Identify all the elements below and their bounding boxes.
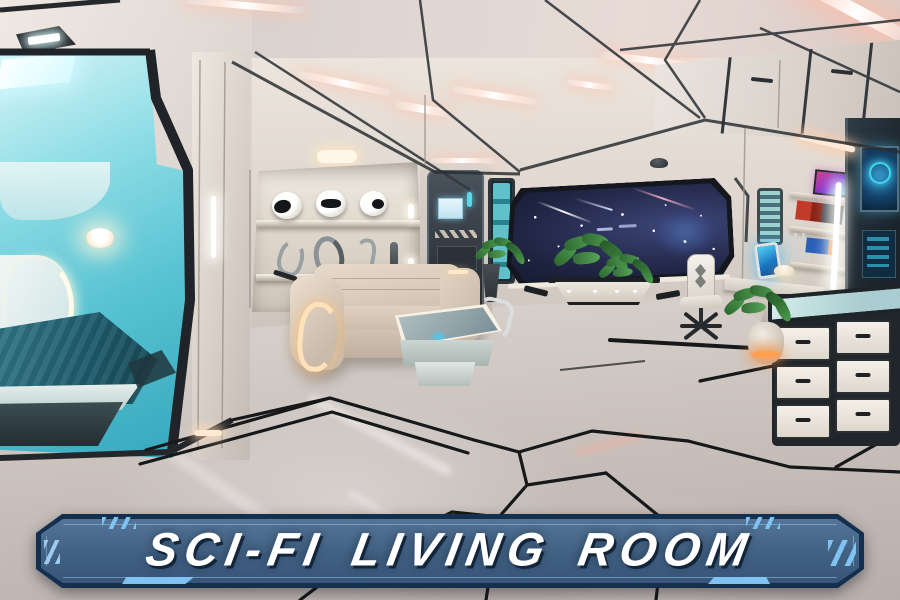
desk-lamp [774, 265, 794, 276]
potted-plant [474, 238, 524, 268]
chrome-rack [786, 233, 808, 259]
shooting-star [574, 198, 613, 212]
cabinet-handle [751, 77, 773, 83]
helmet-display [316, 190, 346, 217]
page-title: SCI-FI LIVING ROOM [32, 526, 868, 573]
shelf-board [256, 220, 420, 227]
console-screen [862, 230, 896, 278]
bench-plant [598, 255, 653, 288]
pod-door-column [192, 52, 250, 460]
cabinet-handle [831, 69, 853, 75]
drawer [835, 359, 891, 394]
table-base [412, 362, 478, 386]
nebula [654, 210, 716, 257]
niche-ceiling-lamp [317, 150, 357, 163]
banner-accent-bar [122, 577, 194, 584]
banner-accent-bar [708, 577, 770, 584]
sofa-armrest-left [290, 276, 344, 370]
pod-floor-light [194, 430, 222, 436]
armrest-glow-strip [294, 300, 341, 374]
shooting-star [632, 187, 695, 210]
louvered-vent [757, 188, 783, 245]
scifi-living-room-render: SCI-FI LIVING ROOM [0, 0, 900, 600]
holo-coffee-table [388, 298, 510, 386]
office-chair [672, 254, 730, 334]
niche-light [408, 204, 414, 219]
title-banner: SCI-FI LIVING ROOM [36, 514, 864, 588]
drawer [835, 320, 891, 355]
console-screen [860, 146, 899, 212]
pod-edge-light [211, 196, 216, 258]
helmet-display [360, 191, 387, 216]
distant-ship-light [597, 227, 613, 231]
drawer [835, 398, 891, 433]
pod-shelf [0, 162, 110, 220]
floor-plant [723, 286, 796, 332]
drawer [775, 404, 831, 439]
shooting-star [537, 200, 592, 223]
cabinet-seam [800, 40, 814, 144]
door-control-screen [438, 198, 463, 219]
pod-lamp [86, 228, 114, 248]
drawer [775, 365, 831, 400]
dome-lamp [650, 158, 668, 168]
helmet-display [272, 192, 302, 219]
distant-ship-light [619, 224, 637, 228]
pod-ceiling-light [0, 52, 76, 89]
door-hazard-stripe [435, 230, 477, 238]
pod-bed-base [0, 402, 140, 446]
door-indicator-light [467, 192, 472, 207]
